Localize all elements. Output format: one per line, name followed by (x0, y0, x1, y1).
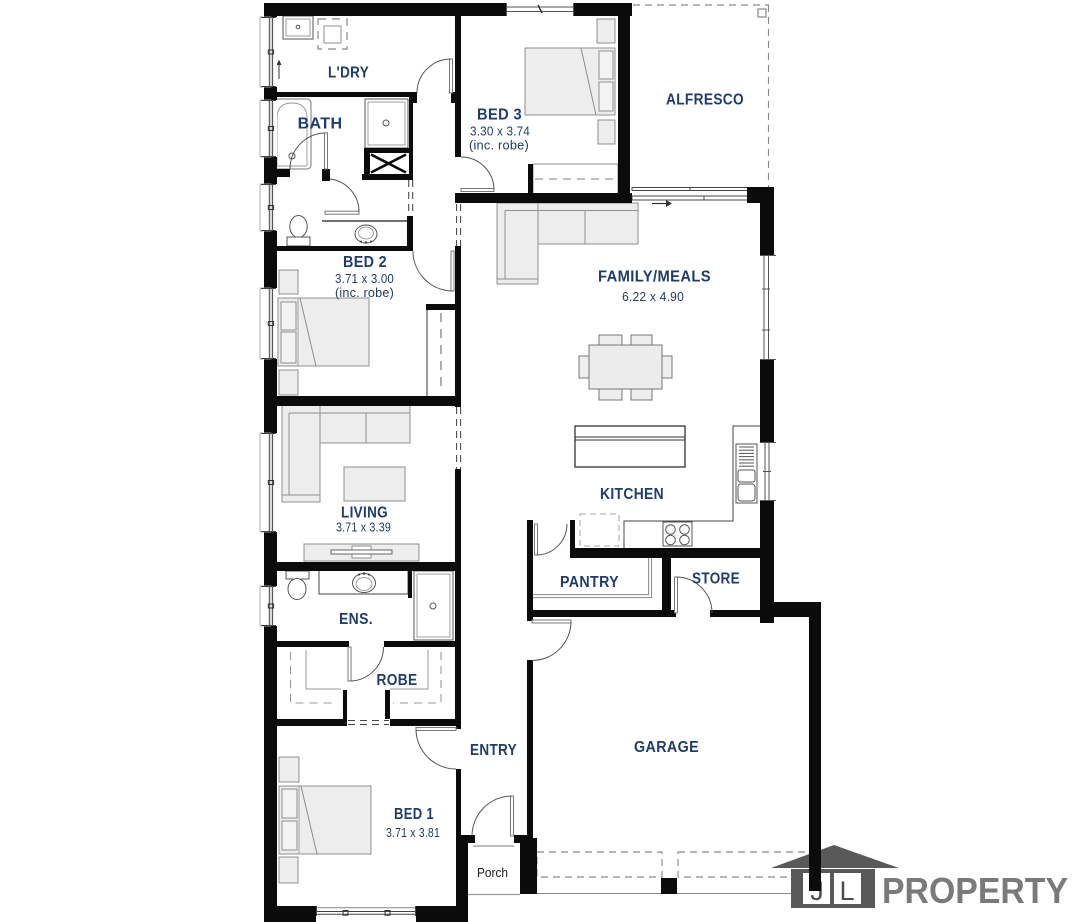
svg-text:KITCHEN: KITCHEN (600, 486, 664, 503)
svg-text:(inc. robe): (inc. robe) (335, 285, 394, 300)
svg-text:BED 1: BED 1 (394, 806, 434, 823)
svg-text:L: L (839, 876, 854, 906)
svg-text:(inc. robe): (inc. robe) (469, 138, 529, 153)
svg-text:3.30 x 3.74: 3.30 x 3.74 (470, 124, 530, 139)
svg-text:6.22 x 4.90: 6.22 x 4.90 (622, 289, 684, 304)
svg-text:GARAGE: GARAGE (634, 739, 699, 756)
svg-text:L'DRY: L'DRY (328, 65, 369, 82)
svg-text:PANTRY: PANTRY (560, 574, 619, 591)
svg-text:BATH: BATH (298, 116, 343, 133)
svg-text:BED 3: BED 3 (477, 107, 522, 124)
svg-text:BED 2: BED 2 (343, 254, 387, 271)
svg-text:3.71 x 3.00: 3.71 x 3.00 (335, 271, 394, 286)
svg-text:ROBE: ROBE (377, 672, 418, 689)
svg-text:3.71 x 3.39: 3.71 x 3.39 (336, 520, 391, 535)
svg-text:PROPERTY: PROPERTY (882, 870, 1068, 911)
svg-text:STORE: STORE (692, 571, 740, 588)
svg-text:FAMILY/MEALS: FAMILY/MEALS (598, 269, 711, 286)
svg-text:Porch: Porch (477, 866, 508, 880)
svg-text:3.71 x 3.81: 3.71 x 3.81 (386, 825, 440, 840)
svg-text:ALFRESCO: ALFRESCO (666, 92, 744, 109)
svg-text:ENTRY: ENTRY (470, 742, 517, 759)
svg-text:ENS.: ENS. (339, 611, 373, 628)
